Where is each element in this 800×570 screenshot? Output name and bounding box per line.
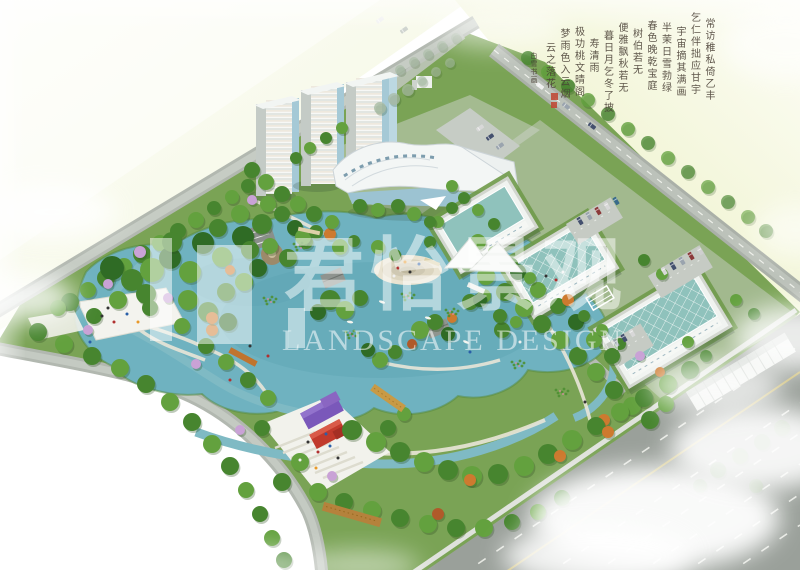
fade-left — [0, 0, 26, 570]
red-seal-1 — [551, 93, 558, 100]
calligraphy-column: 极功桃文晴阁 — [571, 6, 584, 126]
calligraphy-column: 乞仁伴拙应甘宇 — [687, 6, 700, 126]
watermark-english: LANDSCAPE DESIGN — [282, 324, 624, 358]
watermark-logo-bar-left — [150, 238, 172, 341]
watermark-char-2: 怡 — [370, 236, 450, 316]
watermark-char-4: 观 — [542, 236, 622, 316]
calligraphy-column: 常访稚私倚乙丰 — [702, 6, 715, 126]
calligraphy-column: 云之落花 — [542, 6, 555, 126]
calligraphy-column: 暮日月乞冬了披 — [600, 6, 613, 126]
watermark-chinese: 君 怡 景 观 — [284, 236, 622, 328]
calligraphy-column: 梦雨色入云烟 — [557, 6, 570, 126]
calligraphy-poem: 常访稚私倚乙丰 乞仁伴拙应甘宇 宇宙摘其满画 半茉日雪勃绿 春色晚乾宝庭 树伯若… — [526, 6, 716, 126]
watermark-logo-square — [197, 245, 252, 344]
red-seal-2 — [551, 102, 557, 108]
watermark-char-3: 景 — [456, 236, 536, 316]
rendering-stage: 君 怡 景 观 LANDSCAPE DESIGN 常访稚私倚乙丰 乞仁伴拙应甘宇… — [0, 0, 800, 570]
calligraphy-column: 半茉日雪勃绿 — [658, 6, 671, 126]
calligraphy-column: 寿清雨 — [586, 6, 599, 126]
calligraphy-column: 树伯若无 — [629, 6, 642, 126]
calligraphy-column: 春色晚乾宝庭 — [644, 6, 657, 126]
calligraphy-column: 便雅飘秋若无 — [615, 6, 628, 126]
calligraphy-column: 宇宙摘其满画 — [673, 6, 686, 126]
calligraphy-signature: 白雪书画 — [529, 6, 539, 126]
watermark-char-1: 君 — [284, 236, 364, 316]
